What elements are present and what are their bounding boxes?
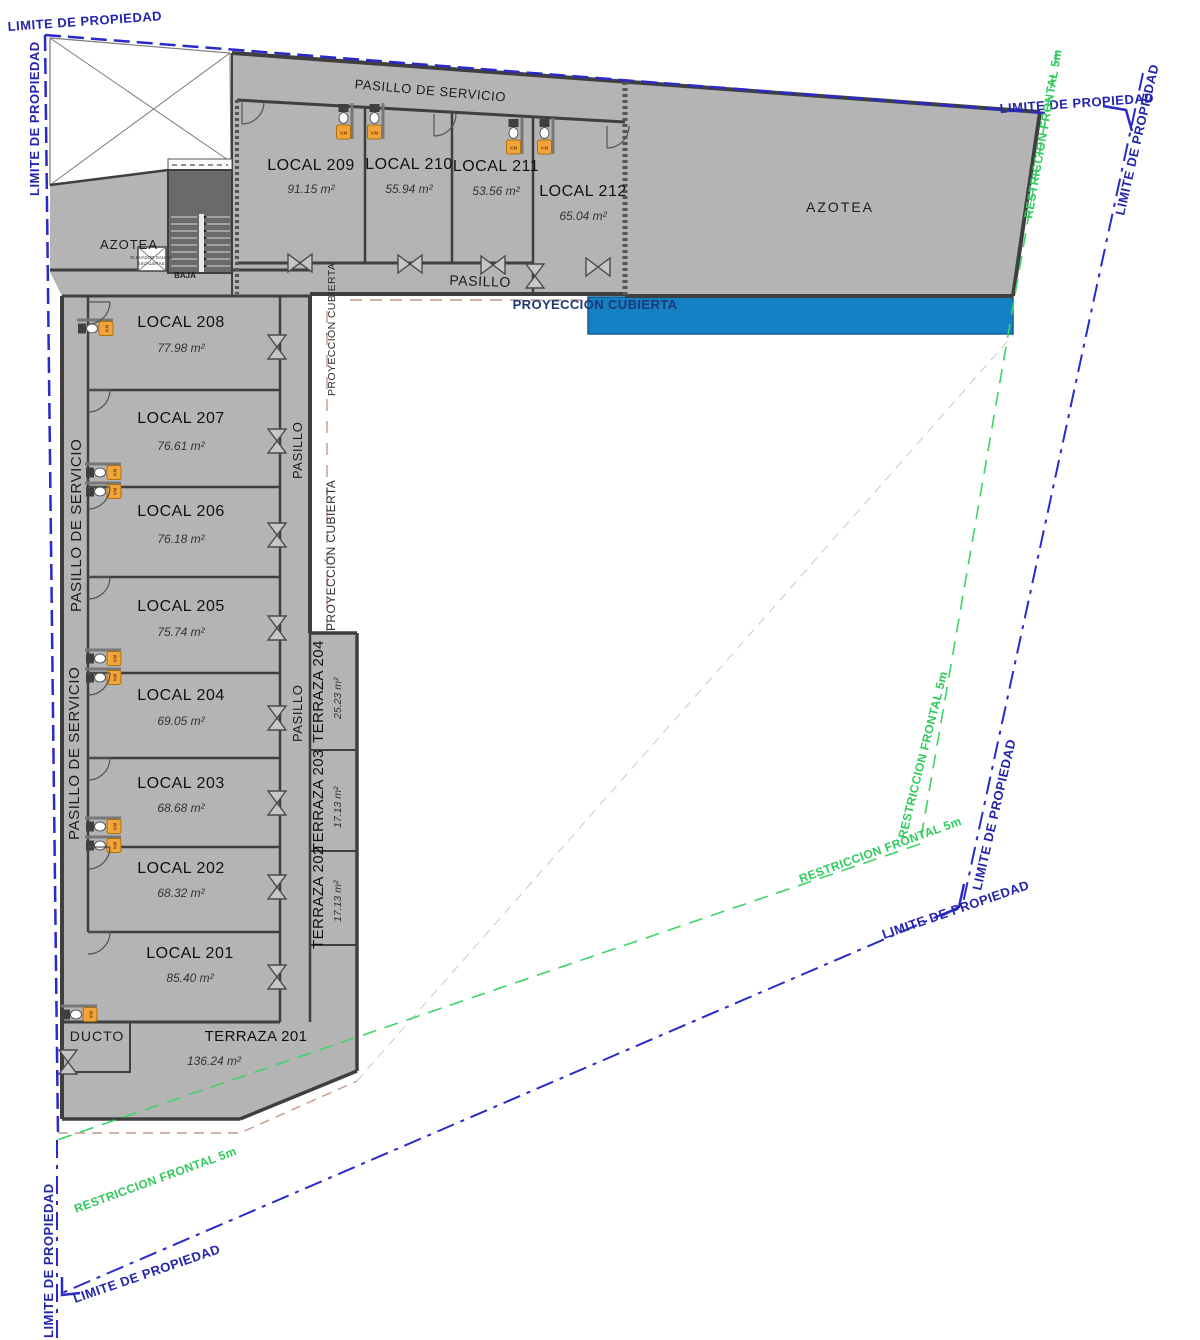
local-205-label: LOCAL 205 [137, 598, 225, 615]
toilet-bowl-icon [95, 468, 106, 477]
toilet-bowl-icon [95, 673, 106, 682]
vanity-vm-label: V.M [510, 146, 518, 151]
toilet-tank-icon [540, 119, 550, 127]
toilet-bowl-icon [370, 113, 379, 124]
local-210-label: LOCAL 210 [365, 156, 453, 173]
toilet-bowl-icon [95, 654, 106, 663]
local-201-area: 85.40 m² [166, 971, 214, 985]
pasillo-vertical-label-2: PASILLO [290, 685, 305, 742]
terraza-203-label: TERRAZA 203 [310, 749, 327, 852]
local-208-label: LOCAL 208 [137, 314, 225, 331]
terraza-201-area: 136.24 m² [187, 1054, 242, 1068]
terraza-203-area: 17.13 m² [332, 786, 344, 828]
vanity-vm-label: V.M [113, 673, 118, 681]
local-207-label: LOCAL 207 [137, 410, 225, 427]
property-corner-top-right [1103, 106, 1132, 131]
top-wing-footprint [232, 53, 1040, 296]
limite-label-top-right-steep: LIMITE DE PROPIEDAD [1112, 63, 1161, 217]
limite-label-top-left: LIMITE DE PROPIEDAD [7, 8, 162, 34]
vanity-vm-label: V.M [340, 131, 348, 136]
pasillo-servicio-left-label-2: PASILLO DE SERVICIO [66, 667, 83, 840]
vanity-vm-label: V.M [113, 468, 118, 476]
limite-label-right-steep: LIMITE DE PROPIEDAD [969, 738, 1018, 892]
local-203-label: LOCAL 203 [137, 775, 225, 792]
limite-label-bottom-diagonal: LIMITE DE PROPIEDAD [71, 1241, 222, 1306]
toilet-bowl-icon [339, 113, 348, 124]
local-209-label: LOCAL 209 [267, 157, 355, 174]
local-204-area: 69.05 m² [157, 714, 205, 728]
limite-label-left: LIMITE DE PROPIEDAD [27, 41, 42, 196]
terraza-201-label: TERRAZA 201 [205, 1028, 308, 1045]
toilet-bowl-icon [95, 487, 106, 496]
site-edge-faint-line [357, 335, 1013, 1081]
restriccion-label-bottom: RESTRICCION FRONTAL 5m [72, 1144, 238, 1216]
local-201-label: LOCAL 201 [146, 945, 234, 962]
limite-label-mid-diagonal: LIMITE DE PROPIEDAD [880, 877, 1031, 942]
pasillo-servicio-left-label-1: PASILLO DE SERVICIO [68, 439, 85, 612]
vanity-vm-label: V.M [89, 1010, 94, 1018]
vanity-vm-label: V.M [113, 822, 118, 830]
vanity-vm-label: V.M [113, 841, 118, 849]
local-211-label: LOCAL 211 [453, 158, 539, 175]
limite-label-bottom-left-vertical: LIMITE DE PROPIEDAD [41, 1183, 56, 1338]
vanity-vm-label: V.M [113, 654, 118, 662]
azotea-main-label: AZOTEA [806, 199, 874, 215]
baja-label: BAJA [174, 271, 196, 280]
vanity-vm-label: V.M [371, 131, 379, 136]
toilet-bowl-icon [87, 324, 98, 333]
toilet-tank-icon [86, 487, 94, 497]
local-212-area: 65.04 m² [559, 209, 607, 223]
local-202-label: LOCAL 202 [137, 860, 225, 877]
toilet-tank-icon [62, 1010, 70, 1020]
local-211-area: 53.56 m² [472, 184, 520, 198]
toilet-tank-icon [86, 841, 94, 851]
toilet-tank-icon [339, 104, 349, 112]
local-209-area: 91.15 m² [287, 182, 335, 196]
local-203-area: 68.68 m² [157, 801, 205, 815]
restriccion-label-mid-flat: RESTRICCION FRONTAL 5m [797, 814, 963, 886]
vanity-vm-label: V.M [113, 487, 118, 495]
pasillo-vertical-label-1: PASILLO [290, 422, 305, 479]
floor-plan-sheet: V.MV.MV.MV.MV.MV.MV.MV.MV.MV.MV.MV.M LIM… [0, 0, 1200, 1340]
local-204-label: LOCAL 204 [137, 687, 225, 704]
stair-divider [199, 214, 204, 272]
proyeccion-cubierta-vertical-label-2: PROYECCIÓN CUBIERTA [323, 480, 338, 631]
toilet-tank-icon [78, 324, 86, 334]
vanity-vm-label: V.M [105, 324, 110, 332]
elevador-label-line1: ELEVADOR SALIDA [130, 255, 171, 260]
toilet-bowl-icon [71, 1010, 82, 1019]
local-206-area: 76.18 m² [157, 532, 205, 546]
terraza-202-area: 17.13 m² [332, 880, 344, 922]
ducto-label: DUCTO [70, 1028, 125, 1044]
toilet-tank-icon [509, 119, 519, 127]
toilet-bowl-icon [95, 822, 106, 831]
local-202-area: 68.32 m² [157, 886, 205, 900]
local-212-label: LOCAL 212 [539, 183, 627, 200]
local-205-area: 75.74 m² [157, 625, 205, 639]
local-208-area: 77.98 m² [157, 341, 205, 355]
elevador-label-line2: ESCALERAS [137, 261, 164, 266]
proyeccion-cubierta-horizontal-label: PROYECCIÓN CUBIERTA [513, 297, 678, 312]
toilet-tank-icon [86, 654, 94, 664]
vanity-vm-label: V.M [541, 146, 549, 151]
local-207-area: 76.61 m² [157, 439, 205, 453]
toilet-tank-icon [86, 673, 94, 683]
local-210-area: 55.94 m² [385, 182, 433, 196]
floor-plan: V.MV.MV.MV.MV.MV.MV.MV.MV.MV.MV.MV.M LIM… [0, 0, 1200, 1340]
toilet-tank-icon [86, 468, 94, 478]
toilet-tank-icon [86, 822, 94, 832]
toilet-bowl-icon [95, 841, 106, 850]
limite-label-top-right: LIMITE DE PROPIEDAD [999, 90, 1154, 116]
local-206-label: LOCAL 206 [137, 503, 225, 520]
azotea-small-label: AZOTEA [100, 237, 158, 252]
terraza-204-area: 25.23 m² [332, 677, 344, 720]
toilet-bowl-icon [540, 128, 549, 139]
terraza-202-label: TERRAZA 202 [310, 846, 327, 949]
toilet-tank-icon [370, 104, 380, 112]
pasillo-top-label: PASILLO [449, 272, 511, 290]
toilet-bowl-icon [509, 128, 518, 139]
restriccion-label-mid-steep: RESTRICCION FRONTAL 5m [895, 670, 950, 840]
proyeccion-cubierta-vertical-label-1: PROYECCIÓN CUBIERTA [325, 263, 338, 396]
terraza-204-label: TERRAZA 204 [310, 640, 327, 743]
